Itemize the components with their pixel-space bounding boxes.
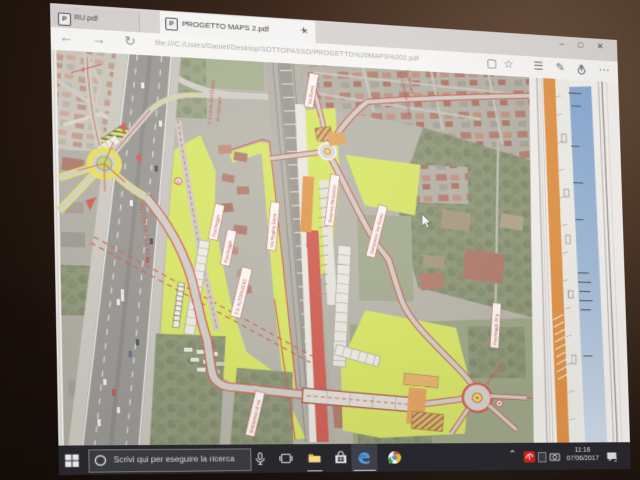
svg-text:2: 2 bbox=[614, 457, 618, 462]
